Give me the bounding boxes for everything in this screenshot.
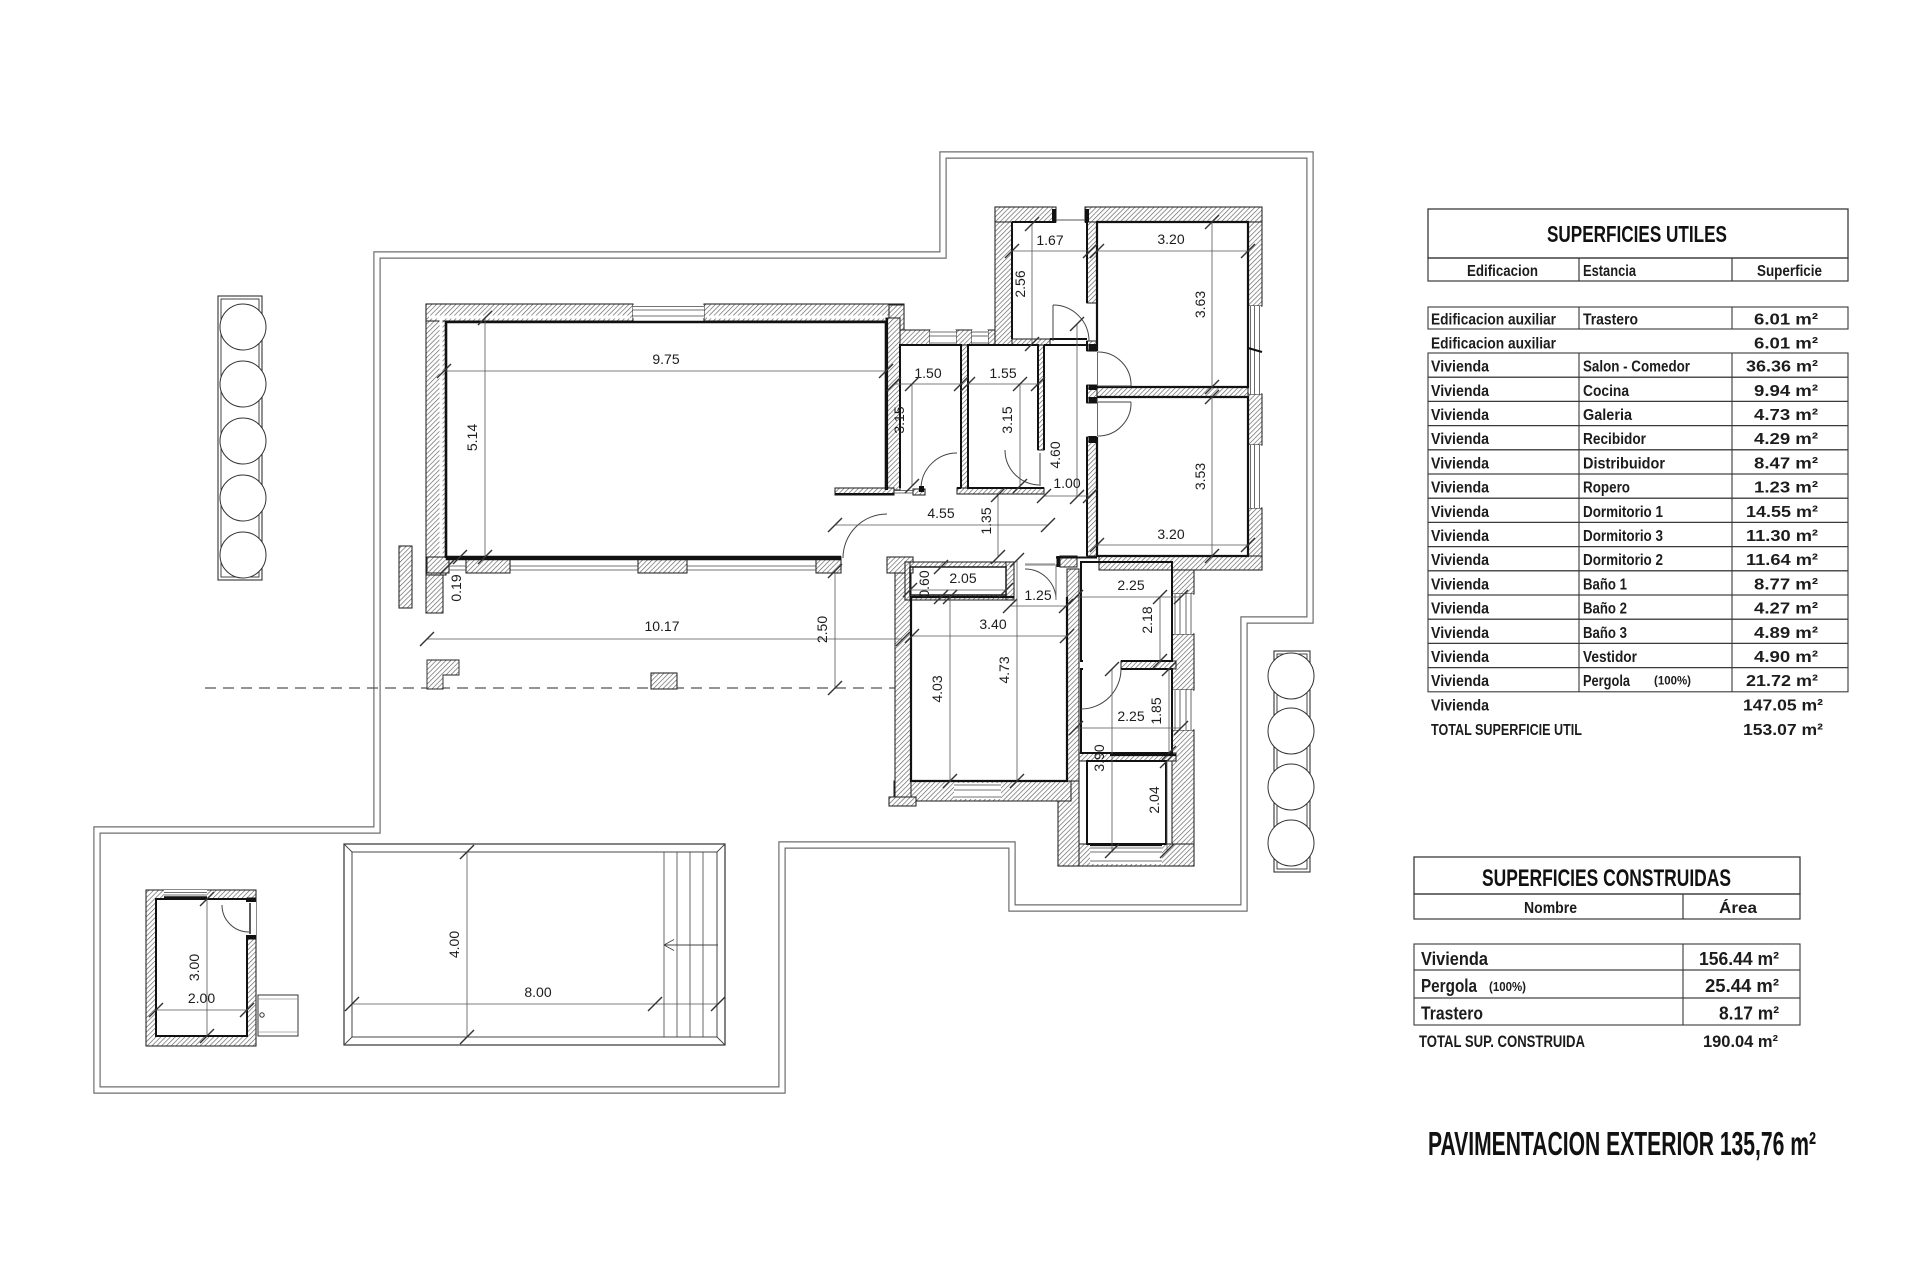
svg-text:4.03: 4.03 (929, 675, 945, 702)
svg-text:Edificacion: Edificacion (1467, 263, 1538, 280)
svg-text:1.35: 1.35 (978, 507, 994, 534)
svg-text:Vivienda: Vivienda (1431, 673, 1489, 690)
svg-text:Salon - Comedor: Salon - Comedor (1583, 359, 1690, 376)
svg-text:Dormitorio 2: Dormitorio 2 (1583, 552, 1663, 569)
svg-text:Recibidor: Recibidor (1583, 431, 1646, 448)
svg-text:156.44 m²: 156.44 m² (1699, 948, 1779, 969)
svg-text:Pergola: Pergola (1583, 673, 1630, 690)
svg-text:Baño 1: Baño 1 (1583, 576, 1627, 593)
svg-text:Vivienda: Vivienda (1431, 359, 1489, 376)
svg-text:SUPERFICIES UTILES: SUPERFICIES UTILES (1547, 221, 1727, 247)
svg-text:2.25: 2.25 (1117, 577, 1144, 593)
svg-text:1.67: 1.67 (1036, 232, 1063, 248)
svg-text:Vivienda: Vivienda (1431, 649, 1489, 666)
svg-text:2.56: 2.56 (1012, 270, 1028, 297)
svg-text:2.25: 2.25 (1117, 708, 1144, 724)
svg-text:Estancia: Estancia (1583, 263, 1636, 280)
svg-text:Edificacion auxiliar: Edificacion auxiliar (1431, 336, 1556, 353)
svg-text:Vivienda: Vivienda (1431, 698, 1489, 715)
svg-text:Dormitorio 1: Dormitorio 1 (1583, 504, 1663, 521)
svg-text:(100%): (100%) (1489, 979, 1526, 994)
svg-text:Vivienda: Vivienda (1431, 528, 1489, 545)
svg-text:6.01 m²: 6.01 m² (1754, 336, 1818, 353)
svg-text:Trastero: Trastero (1583, 312, 1638, 329)
svg-text:(100%): (100%) (1654, 674, 1691, 688)
svg-text:Vivienda: Vivienda (1421, 948, 1489, 969)
svg-text:8.00: 8.00 (524, 984, 551, 1000)
svg-text:9.94 m²: 9.94 m² (1754, 383, 1818, 400)
svg-text:Ropero: Ropero (1583, 480, 1630, 497)
svg-text:Baño 3: Baño 3 (1583, 625, 1627, 642)
svg-text:Vivienda: Vivienda (1431, 576, 1489, 593)
svg-text:Cocina: Cocina (1583, 383, 1629, 400)
svg-text:3.20: 3.20 (1157, 231, 1184, 247)
svg-text:2.50: 2.50 (814, 616, 830, 643)
svg-text:1.23 m²: 1.23 m² (1754, 480, 1818, 497)
svg-text:Edificacion auxiliar: Edificacion auxiliar (1431, 312, 1556, 329)
svg-text:SUPERFICIES CONSTRUIDAS: SUPERFICIES CONSTRUIDAS (1482, 865, 1731, 892)
svg-text:3.63: 3.63 (1192, 291, 1208, 318)
svg-text:0.60: 0.60 (916, 570, 932, 597)
svg-text:3.20: 3.20 (1157, 526, 1184, 542)
svg-text:11.30 m²: 11.30 m² (1746, 528, 1818, 545)
svg-text:2.04: 2.04 (1146, 786, 1162, 813)
svg-text:Vivienda: Vivienda (1431, 383, 1489, 400)
svg-text:Vivienda: Vivienda (1431, 455, 1489, 472)
svg-text:TOTAL SUP. CONSTRUIDA: TOTAL SUP. CONSTRUIDA (1419, 1033, 1585, 1051)
svg-text:3.53: 3.53 (1192, 463, 1208, 490)
svg-text:Nombre: Nombre (1524, 900, 1577, 917)
svg-text:1.50: 1.50 (914, 365, 941, 381)
svg-text:Vivienda: Vivienda (1431, 407, 1489, 424)
svg-text:Dormitorio 3: Dormitorio 3 (1583, 528, 1663, 545)
svg-text:36.36 m²: 36.36 m² (1746, 359, 1818, 376)
svg-text:Galeria: Galeria (1583, 407, 1632, 424)
svg-text:Área: Área (1719, 898, 1757, 917)
svg-text:Vivienda: Vivienda (1431, 552, 1489, 569)
svg-text:3.90: 3.90 (1091, 744, 1107, 771)
svg-text:3.15: 3.15 (999, 406, 1015, 433)
svg-text:PAVIMENTACION EXTERIOR 135,76: PAVIMENTACION EXTERIOR 135,76 m² (1428, 1125, 1816, 1162)
svg-text:1.55: 1.55 (989, 365, 1016, 381)
svg-text:4.73: 4.73 (996, 656, 1012, 683)
svg-text:Distribuidor: Distribuidor (1583, 455, 1665, 472)
svg-text:2.18: 2.18 (1139, 606, 1155, 633)
svg-text:4.73 m²: 4.73 m² (1754, 407, 1818, 424)
svg-text:0.19: 0.19 (448, 574, 464, 601)
svg-text:Vestidor: Vestidor (1583, 649, 1637, 666)
svg-text:190.04 m²: 190.04 m² (1703, 1033, 1779, 1051)
svg-text:Vivienda: Vivienda (1431, 480, 1489, 497)
svg-text:10.17: 10.17 (644, 618, 679, 634)
svg-text:4.60: 4.60 (1047, 441, 1063, 468)
svg-text:147.05 m²: 147.05 m² (1743, 698, 1823, 715)
svg-text:2.05: 2.05 (949, 570, 976, 586)
svg-text:2.00: 2.00 (188, 990, 215, 1006)
svg-text:25.44 m²: 25.44 m² (1705, 975, 1779, 996)
svg-text:4.27 m²: 4.27 m² (1754, 601, 1818, 618)
svg-text:5.14: 5.14 (464, 424, 480, 451)
svg-text:6.01 m²: 6.01 m² (1754, 312, 1818, 329)
svg-text:3.00: 3.00 (186, 954, 202, 981)
svg-text:Superficie: Superficie (1757, 263, 1822, 280)
svg-text:8.47 m²: 8.47 m² (1754, 455, 1818, 472)
svg-text:4.90 m²: 4.90 m² (1754, 649, 1818, 666)
svg-text:3.15: 3.15 (891, 406, 907, 433)
svg-text:4.55: 4.55 (927, 505, 954, 521)
svg-text:21.72 m²: 21.72 m² (1746, 673, 1818, 690)
svg-text:Vivienda: Vivienda (1431, 601, 1489, 618)
svg-text:9.75: 9.75 (652, 351, 679, 367)
svg-text:4.29 m²: 4.29 m² (1754, 431, 1818, 448)
svg-text:TOTAL SUPERFICIE UTIL: TOTAL SUPERFICIE UTIL (1431, 722, 1582, 739)
svg-text:11.64 m²: 11.64 m² (1746, 552, 1818, 569)
svg-text:Vivienda: Vivienda (1431, 504, 1489, 521)
svg-text:Baño 2: Baño 2 (1583, 601, 1627, 618)
svg-text:Vivienda: Vivienda (1431, 431, 1489, 448)
svg-text:4.89 m²: 4.89 m² (1754, 625, 1818, 642)
svg-text:1.00: 1.00 (1053, 475, 1080, 491)
svg-text:Vivienda: Vivienda (1431, 625, 1489, 642)
svg-text:4.00: 4.00 (446, 931, 462, 958)
svg-text:14.55 m²: 14.55 m² (1746, 504, 1818, 521)
svg-text:8.77 m²: 8.77 m² (1754, 576, 1818, 593)
svg-text:153.07 m²: 153.07 m² (1743, 722, 1823, 739)
svg-text:8.17 m²: 8.17 m² (1719, 1003, 1779, 1024)
svg-text:Trastero: Trastero (1421, 1003, 1483, 1024)
svg-text:3.40: 3.40 (979, 616, 1006, 632)
svg-text:1.85: 1.85 (1148, 697, 1164, 724)
svg-text:1.25: 1.25 (1024, 587, 1051, 603)
svg-text:Pergola: Pergola (1421, 975, 1478, 996)
